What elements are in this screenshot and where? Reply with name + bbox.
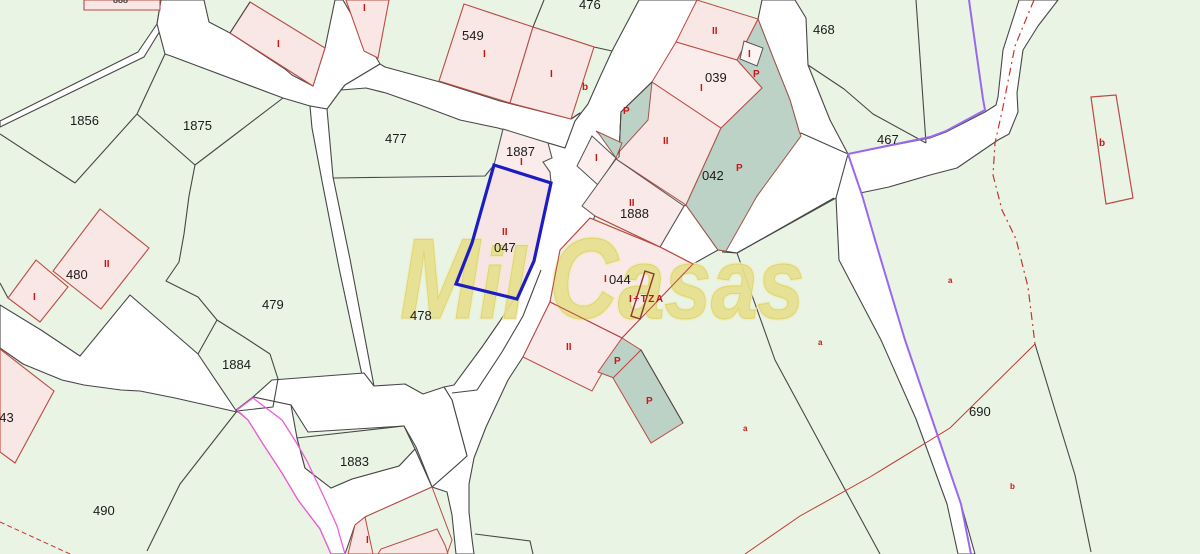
svg-text:443: 443 [0, 410, 14, 425]
svg-text:039: 039 [705, 70, 727, 85]
svg-text:047: 047 [494, 240, 516, 255]
svg-text:P: P [614, 356, 621, 367]
svg-text:I: I [748, 49, 751, 60]
svg-text:I: I [366, 535, 369, 546]
svg-text:I: I [277, 39, 280, 50]
svg-text:478: 478 [410, 308, 432, 323]
svg-text:a: a [743, 424, 748, 433]
svg-text:I+TZA: I+TZA [629, 294, 665, 305]
svg-text:I: I [520, 157, 523, 168]
svg-text:490: 490 [93, 503, 115, 518]
svg-text:I: I [483, 49, 486, 60]
svg-text:II: II [712, 26, 718, 37]
svg-text:b: b [582, 82, 588, 93]
svg-text:a: a [818, 338, 823, 347]
svg-text:P: P [623, 106, 630, 117]
svg-text:044: 044 [609, 272, 631, 287]
svg-text:1884: 1884 [222, 357, 251, 372]
svg-text:Mil Casas: Mil Casas [400, 216, 804, 343]
svg-text:480: 480 [66, 267, 88, 282]
svg-text:II: II [566, 342, 572, 353]
svg-text:I: I [700, 83, 703, 94]
svg-text:b: b [1010, 482, 1015, 491]
svg-text:I: I [33, 292, 36, 303]
svg-text:888: 888 [113, 0, 128, 5]
svg-text:1875: 1875 [183, 118, 212, 133]
svg-text:1856: 1856 [70, 113, 99, 128]
svg-text:P: P [646, 396, 653, 407]
svg-text:477: 477 [385, 131, 407, 146]
svg-text:1883: 1883 [340, 454, 369, 469]
svg-text:468: 468 [813, 22, 835, 37]
svg-text:467: 467 [877, 132, 899, 147]
svg-text:I: I [595, 153, 598, 164]
svg-text:b: b [1099, 138, 1105, 149]
svg-text:549: 549 [462, 28, 484, 43]
svg-text:P: P [736, 163, 743, 174]
svg-text:I: I [550, 69, 553, 80]
svg-text:479: 479 [262, 297, 284, 312]
svg-text:P: P [753, 69, 760, 80]
svg-text:1888: 1888 [620, 206, 649, 221]
svg-text:690: 690 [969, 404, 991, 419]
svg-text:I: I [604, 274, 607, 285]
svg-text:a: a [948, 276, 953, 285]
svg-text:476: 476 [579, 0, 601, 12]
svg-text:II: II [104, 259, 110, 270]
svg-text:II: II [663, 136, 669, 147]
svg-text:II: II [502, 227, 508, 238]
svg-text:I: I [363, 3, 366, 14]
svg-text:042: 042 [702, 168, 724, 183]
